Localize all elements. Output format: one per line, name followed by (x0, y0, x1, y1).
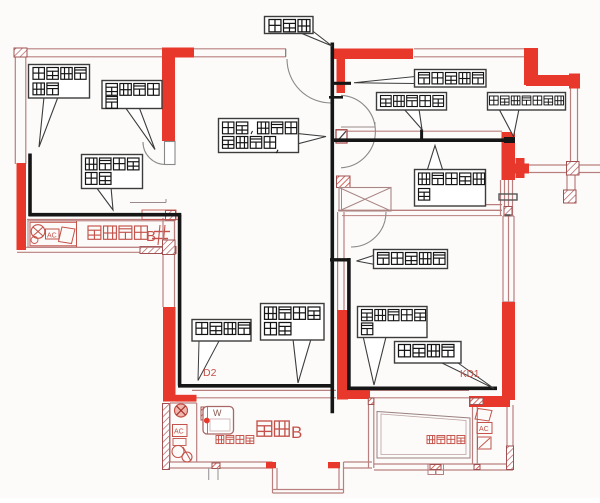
svg-text:AC: AC (47, 232, 57, 239)
svg-text:B: B (291, 423, 302, 442)
svg-text:D2: D2 (203, 367, 217, 379)
svg-text:W: W (213, 408, 222, 418)
svg-text:AC: AC (174, 429, 184, 436)
svg-text:KD1: KD1 (460, 369, 480, 380)
svg-text:AC: AC (479, 426, 489, 433)
svg-text:B: B (146, 228, 156, 245)
